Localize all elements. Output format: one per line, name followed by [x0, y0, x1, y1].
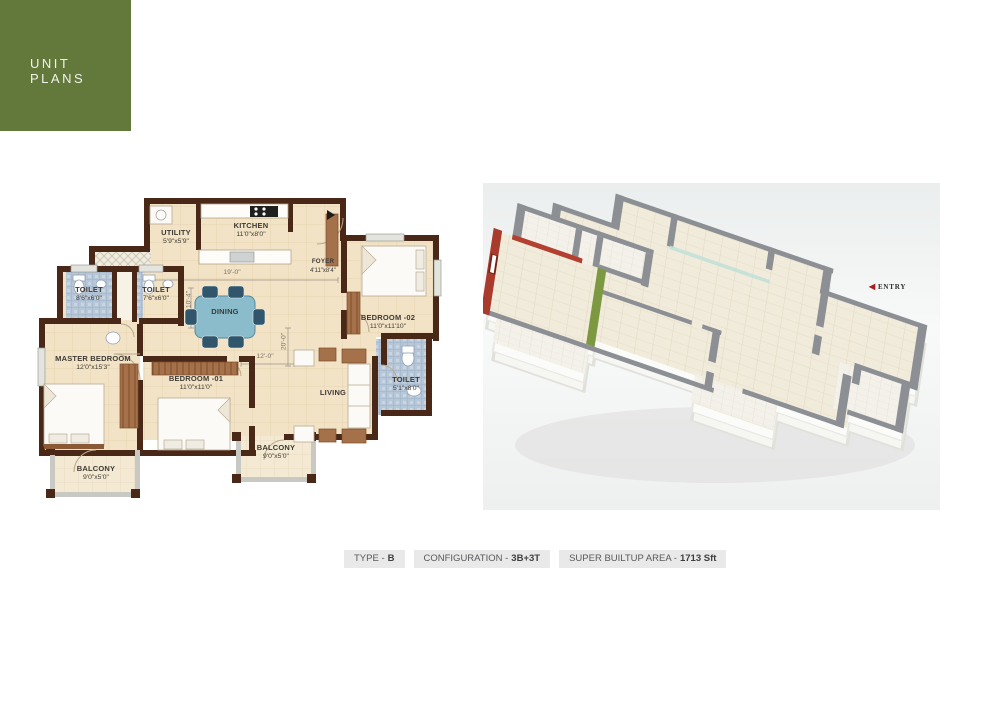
- render-3d-panel: ◀ENTRY: [483, 183, 940, 510]
- room-label-living: LIVING: [308, 389, 358, 398]
- floor-plan-panel: UTILITY 5'9"x5'9" KITCHEN 11'0"x8'0" FOY…: [36, 188, 466, 513]
- render-3d-drawing: [483, 183, 940, 510]
- badge-configuration: CONFIGURATION -3B+3T: [414, 550, 551, 568]
- room-label-dining: DINING: [195, 308, 255, 317]
- room-label-balcony-1: BALCONY 9'0"x5'0": [66, 465, 126, 482]
- dimension-living-height: 20'-0": [281, 321, 288, 363]
- badge-type: TYPE -B: [344, 550, 405, 568]
- room-label-bedroom-02: BEDROOM -02 11'0"x11'10": [346, 314, 430, 331]
- spec-badges: TYPE -B CONFIGURATION -3B+3T SUPER BUILT…: [344, 550, 726, 568]
- badge-super-builtup-area: SUPER BUILTUP AREA -1713 Sft: [559, 550, 726, 568]
- room-label-master-bedroom: MASTER BEDROOM 12'0"x15'3": [46, 355, 140, 372]
- dimension-left-height: 10'-4": [186, 279, 193, 321]
- room-label-kitchen: KITCHEN 11'0"x8'0": [219, 222, 283, 239]
- entry-arrow-icon: ◀: [869, 282, 876, 291]
- unit-plans-page: { "header": { "title": "UNIT PLANS" }, "…: [0, 0, 1000, 714]
- header-green-box: UNIT PLANS: [0, 0, 131, 131]
- room-label-toilet-3: TOILET 5'1"x8'0": [382, 376, 430, 393]
- room-label-toilet-2: TOILET 7'6"x6'0": [132, 286, 180, 303]
- room-label-toilet-1: TOILET 8'6"x6'0": [65, 286, 113, 303]
- dimension-top-width: 19'-0": [186, 269, 278, 276]
- page-title: UNIT PLANS: [30, 56, 131, 86]
- room-label-balcony-2: BALCONY 9'0"x5'0": [246, 444, 306, 461]
- room-label-foyer: FOYER 4'11"x8'4": [298, 258, 348, 275]
- room-label-bedroom-01: BEDROOM -01 11'0"x11'0": [154, 375, 238, 392]
- room-label-utility: UTILITY 5'9"x5'9": [148, 229, 204, 246]
- entry-label: ◀ENTRY: [869, 282, 906, 291]
